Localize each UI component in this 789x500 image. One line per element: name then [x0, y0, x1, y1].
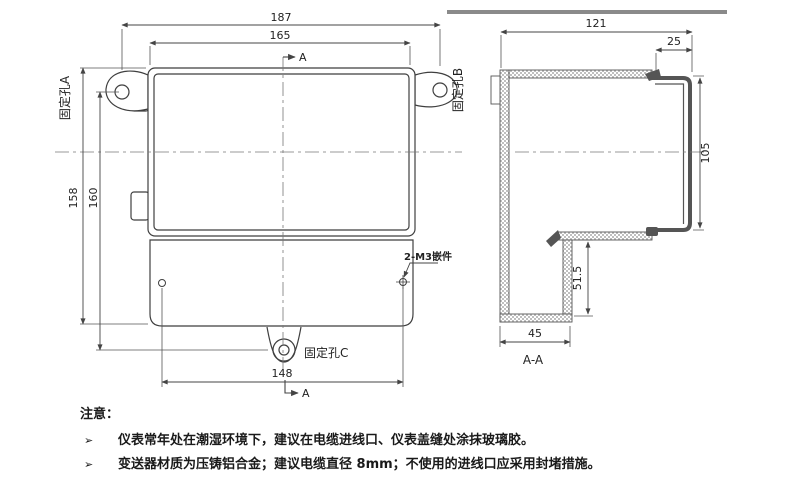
wall-top	[509, 70, 652, 78]
dim-45: 45	[528, 327, 542, 340]
wall-bottom	[500, 314, 572, 322]
dim-158: 158	[67, 188, 80, 209]
note-item-1: ➢仪表常年处在潮湿环境下，建议在电缆进线口、仪表盖缝处涂抹玻璃胶。	[84, 429, 534, 448]
shelf-right-seal	[646, 227, 658, 236]
label-m3-insert: 2-M3嵌件	[404, 250, 452, 263]
front-view	[106, 68, 457, 362]
notes-title: 注意：	[80, 403, 119, 422]
dim-187: 187	[271, 11, 292, 24]
dim-148: 148	[272, 367, 293, 380]
dim-121: 121	[586, 17, 607, 30]
mounting-hole-c	[279, 345, 289, 355]
hinge-tab-section	[491, 76, 500, 104]
label-hole-b: 固定孔B	[450, 68, 465, 112]
hinge-tab-lower	[131, 192, 149, 220]
bullet-icon: ➢	[84, 458, 118, 471]
terminal-box-outline	[150, 240, 413, 326]
note-item-2: ➢变送器材质为压铸铝合金；建议电缆直径 8mm；不使用的进线口应采用封堵措施。	[84, 453, 601, 472]
note-text-1: 仪表常年处在潮湿环境下，建议在电缆进线口、仪表盖缝处涂抹玻璃胶。	[118, 433, 534, 448]
cover-section-inner	[655, 84, 684, 224]
section-letter-bottom: A	[302, 387, 310, 400]
dim-105: 105	[699, 143, 712, 164]
engineering-drawing-page: 187 165 158 160 148 固定孔A 固定孔B 固定孔C 2-M3嵌…	[0, 0, 789, 500]
dim-165: 165	[270, 29, 291, 42]
label-hole-c: 固定孔C	[304, 345, 348, 360]
dim-25: 25	[667, 35, 681, 48]
mounting-boss-c	[273, 339, 295, 361]
dim-51-5: 51.5	[571, 266, 584, 291]
mounting-hole-b	[433, 83, 447, 97]
dim-160: 160	[87, 188, 100, 209]
shelf-left-seal	[546, 230, 561, 247]
label-hole-a: 固定孔A	[57, 75, 72, 120]
technical-drawing: 187 165 158 160 148 固定孔A 固定孔B 固定孔C 2-M3嵌…	[0, 0, 789, 500]
section-view: 121 25 105 51.5 45 A-A	[491, 17, 712, 367]
section-extension-lines	[500, 35, 704, 347]
note-text-2: 变送器材质为压铸铝合金；建议电缆直径 8mm；不使用的进线口应采用封堵措施。	[118, 457, 601, 472]
section-letter-top: A	[299, 51, 307, 64]
section-title: A-A	[523, 353, 544, 367]
bullet-icon: ➢	[84, 434, 118, 447]
wall-shelf	[557, 232, 652, 240]
wall-left	[500, 70, 509, 322]
